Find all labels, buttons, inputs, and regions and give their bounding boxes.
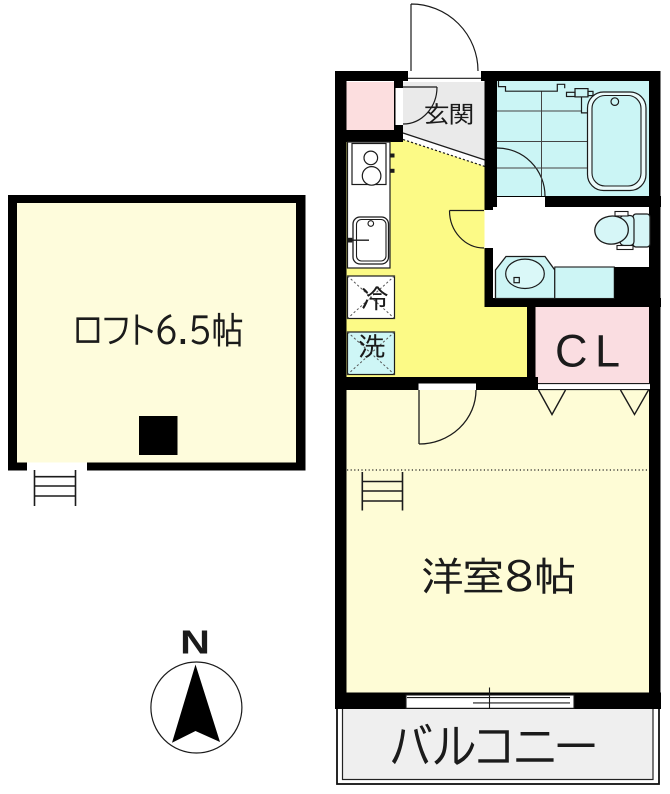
svg-text:N: N	[180, 623, 210, 660]
svg-text:CL: CL	[555, 326, 628, 377]
